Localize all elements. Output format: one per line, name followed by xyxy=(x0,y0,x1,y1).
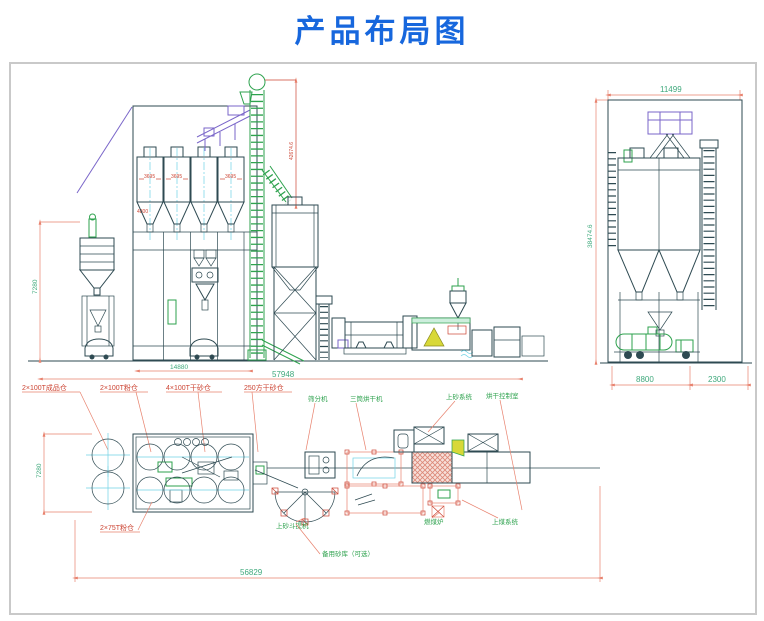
furnace-elevation xyxy=(412,318,473,358)
label-backup-sand: 备用砂库（可选） xyxy=(322,549,374,558)
label-drying-control-room: 烘干控制室 xyxy=(486,391,519,400)
feed-elevator xyxy=(316,296,348,360)
label-dry-sand-silo: 4×100T干砂仓 xyxy=(166,383,211,392)
dim-text-11499: 11499 xyxy=(660,85,682,94)
dim-plan-left: 7280 xyxy=(36,434,92,512)
elevation-bottom-dims: 14880 57948 xyxy=(40,364,520,379)
plan-right-building xyxy=(452,452,530,483)
dim-elevator-height: 42674.6 xyxy=(265,80,296,206)
silo-4: 3695 xyxy=(218,147,244,240)
dim-text-elevator: 42674.6 xyxy=(289,142,295,160)
elevation-view: 7280 xyxy=(28,74,548,379)
dim-text-7280: 7280 xyxy=(32,279,39,294)
dim-text-14880: 14880 xyxy=(170,364,188,371)
dim-text-plan-7280: 7280 xyxy=(36,463,43,478)
tower-machinery xyxy=(168,250,218,360)
plan-bucket-elevator-fan xyxy=(272,488,338,525)
red-labels: 2×100T成品仓 2×100T粉仓 4×100T干砂仓 250方干砂仓 xyxy=(22,383,292,452)
green-labels: 筛分机 三筒烘干机 上砂系统 烘干控制室 上砂斗提机 备用砂库（可选） 燃煤炉 … xyxy=(276,391,522,558)
plan-burner-platform xyxy=(345,484,425,515)
label-big-sand-silo: 250方干砂仓 xyxy=(244,383,284,392)
rotary-dryer xyxy=(344,316,417,354)
side-top-machine xyxy=(624,112,692,162)
dim-top-11499: 11499 xyxy=(608,85,740,100)
plan-view: 7280 xyxy=(36,391,600,582)
side-view: 11499 38474.6 xyxy=(587,85,752,390)
label-powder-silo-75: 2×75T粉仓 xyxy=(100,523,134,532)
dim-side-height: 38474.6 xyxy=(587,100,610,362)
baghouse-unit xyxy=(80,214,114,360)
truck-center xyxy=(190,339,218,356)
label-coal-feed-system: 上煤系统 xyxy=(492,517,519,526)
side-silos xyxy=(612,140,718,362)
label-screen: 筛分机 xyxy=(308,394,328,403)
guy-line xyxy=(77,107,132,193)
silo-level-mark: 3695 xyxy=(171,174,182,180)
label-coal-furnace: 燃煤炉 xyxy=(424,517,444,526)
label-three-drum-dryer: 三筒烘干机 xyxy=(350,394,383,403)
incline-conveyor-purple xyxy=(197,106,250,151)
label-powder-silo: 2×100T粉仓 xyxy=(100,383,138,392)
dim-text-56829: 56829 xyxy=(240,568,263,577)
dim-left-height: 7280 xyxy=(32,222,80,360)
label-finished-silo: 2×100T成品仓 xyxy=(22,383,67,392)
dim-plan-total: 56829 xyxy=(75,486,600,582)
aux-boxes xyxy=(472,327,544,357)
silo-level-mark: 3695 xyxy=(225,174,236,180)
silo-row: 3695 3695 xyxy=(137,147,244,240)
side-frame xyxy=(608,100,742,362)
silo-2: 3695 xyxy=(164,147,190,240)
silo-tower: 4800 xyxy=(133,106,257,360)
label-sand-bucket-elevator: 上砂斗提机 xyxy=(276,521,309,530)
silo-1: 3695 xyxy=(137,147,163,240)
plan-silo-building xyxy=(133,434,267,512)
big-square-silo xyxy=(272,197,318,360)
cad-layout-page: 产品布局图 7280 xyxy=(0,0,764,621)
layout-drawing: 7280 xyxy=(0,0,764,621)
tanker-truck xyxy=(614,327,700,359)
plan-three-drum-dryer xyxy=(412,452,452,483)
silo-level-mark: 3695 xyxy=(144,174,155,180)
dim-text-57948: 57948 xyxy=(272,370,295,379)
dim-text-8800: 8800 xyxy=(636,375,654,384)
dim-text-2300: 2300 xyxy=(708,375,726,384)
label-sand-feed-system: 上砂系统 xyxy=(446,392,473,401)
side-bottom-dims: 8800 2300 xyxy=(612,366,748,390)
plan-coal-system xyxy=(428,484,460,517)
dim-text-38474: 38474.6 xyxy=(587,224,594,248)
silo-3 xyxy=(191,147,217,240)
plan-screen-machine xyxy=(305,452,335,478)
truck-left xyxy=(85,339,113,356)
